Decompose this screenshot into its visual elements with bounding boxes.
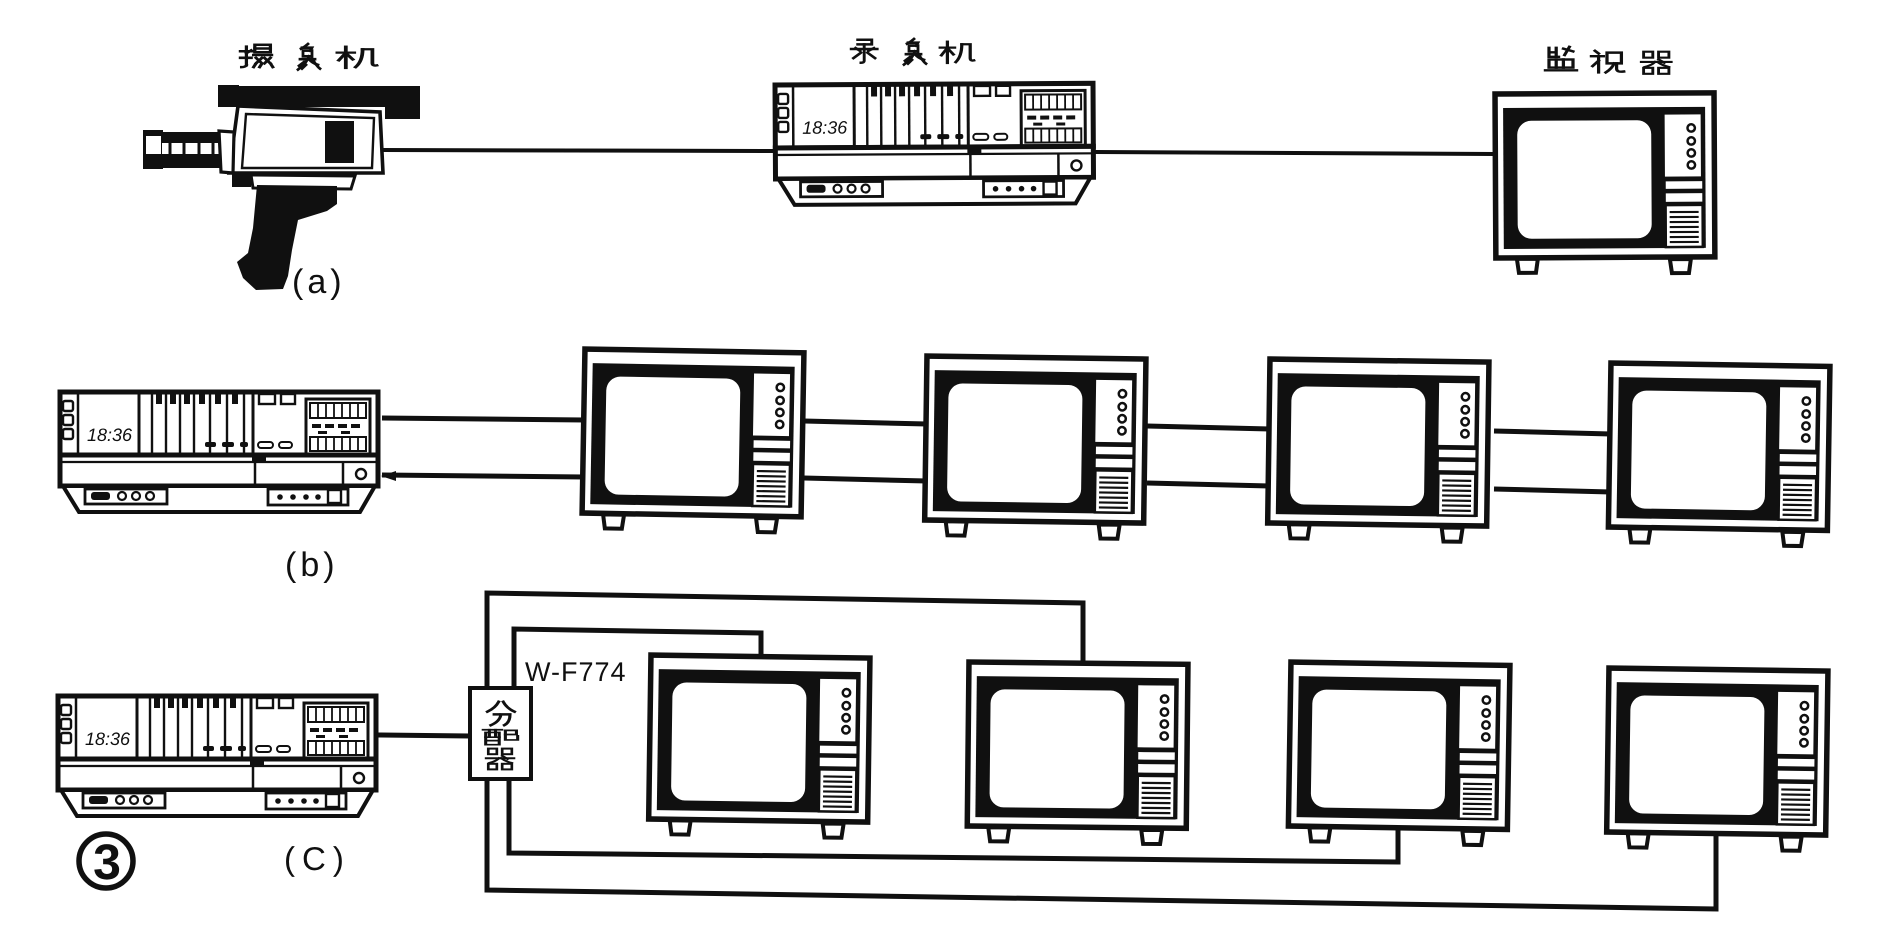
svg-text:(a): (a) [292, 263, 346, 301]
svg-text:(C): (C) [284, 840, 351, 877]
svg-text:(b): (b) [285, 546, 339, 584]
svg-text:W-F774: W-F774 [525, 657, 627, 687]
svg-text:3: 3 [93, 834, 121, 890]
